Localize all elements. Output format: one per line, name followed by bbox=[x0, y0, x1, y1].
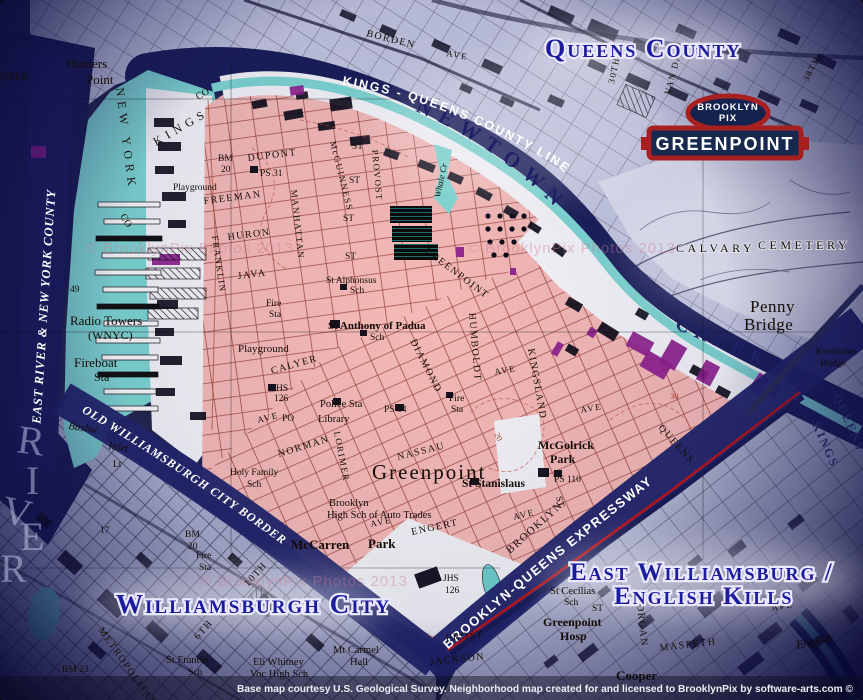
map-label-library-41: Library bbox=[318, 414, 350, 425]
map-label-hall-106: Hall bbox=[350, 657, 368, 668]
williamsburgh-city-title: Williamsburgh City bbox=[116, 589, 391, 619]
map-label-center-0: CENTER bbox=[0, 71, 29, 83]
map-label-sta-78: Sta bbox=[199, 563, 212, 573]
map-label-holy-family-54: Holy Family bbox=[230, 468, 279, 478]
map-label-st-29: ST bbox=[345, 252, 356, 262]
map-label-st-109: ST bbox=[592, 604, 603, 614]
map-label-bm-23-97: BM 23 bbox=[62, 665, 89, 675]
watermark: © BrooklynPix Photos 2013 bbox=[468, 240, 676, 257]
map-label-st-28: ST bbox=[343, 214, 354, 224]
map-label-mccarren-71: McCarren bbox=[291, 537, 350, 552]
map-label-mcgolrick-63: McGolrick bbox=[538, 438, 594, 452]
map-label-greenpoint-110: Greenpoint bbox=[543, 615, 601, 629]
map-label-ps-31-15: PS 31 bbox=[260, 169, 283, 179]
map-label-jhs-73: JHS bbox=[443, 574, 459, 584]
logo-brand-line2: PIX bbox=[719, 113, 737, 124]
map-label-mt-carmel-105: Mt Carmel bbox=[333, 645, 379, 656]
logo-brand-line1: BROOKLYN bbox=[697, 102, 759, 113]
map-label-sta-21: Sta bbox=[269, 310, 282, 320]
map-label-17-96: 17 bbox=[100, 526, 110, 536]
map-label-kosciusko-83: Kosciusko bbox=[816, 347, 856, 357]
map-label-126-74: 126 bbox=[445, 586, 460, 596]
map-label-wnyc-90: (WNYC) bbox=[88, 328, 133, 342]
map-label-st-27: ST bbox=[349, 176, 360, 186]
map-label-20-13: 20 bbox=[221, 165, 231, 175]
map-label-hosp-111: Hosp bbox=[560, 629, 587, 643]
map-label-st-alphonsus-31: St Alphonsus bbox=[326, 276, 377, 286]
map-canvas: NEWTOWN CREEK KINGS - QUEENS COUNTY LINE… bbox=[0, 0, 863, 700]
english-kills-title: English Kills bbox=[614, 583, 793, 610]
map-label-penny-79: Penny bbox=[750, 297, 795, 316]
map-label-playground-16: Playground bbox=[173, 183, 217, 193]
greenpoint-banner: GREENPOINT bbox=[641, 128, 809, 158]
map-label-hs-37: HS bbox=[276, 384, 288, 394]
queens-county-title: Queens County bbox=[545, 34, 742, 63]
map-label-calvary-81: CALVARY bbox=[676, 241, 755, 255]
map-label-park-72: Park bbox=[368, 536, 396, 551]
map-label-point-2: Point bbox=[86, 72, 114, 87]
map-label-po-39: PO bbox=[282, 414, 294, 424]
map-label-fire-77: Fire bbox=[196, 551, 211, 561]
map-label-49-88: 49 bbox=[70, 285, 80, 295]
map-label-st-stanislaus-66: St Stanislaus bbox=[462, 478, 525, 490]
credit-text: Base map courtesy U.S. Geological Survey… bbox=[237, 683, 853, 695]
map-label-sch-55: Sch bbox=[247, 480, 262, 490]
map-label-bm-12: BM bbox=[218, 154, 233, 164]
map-label-30-70: 30 bbox=[670, 391, 679, 401]
map-label-lt-93: Lt bbox=[113, 460, 122, 470]
map-label-fire-43: Fire bbox=[449, 394, 464, 404]
east-williamsburg-title: East Williamsburg / bbox=[570, 559, 834, 586]
map-label-st-anthony-of-padua-33: St Anthony of Padua bbox=[328, 320, 426, 332]
map-label-ps-110-65: PS 110 bbox=[554, 475, 581, 485]
map-label-playground-35: Playground bbox=[238, 343, 289, 355]
map-label-st-francis-101: St Francis bbox=[166, 655, 208, 666]
map-label-st-26: ST bbox=[352, 142, 363, 152]
map-label-police-sta-40: Police Sta bbox=[320, 399, 363, 410]
map-label-radio-towers-89: Radio Towers bbox=[70, 313, 142, 328]
map-label-bm-75: BM bbox=[185, 530, 200, 540]
map-label-r-123: R bbox=[0, 546, 27, 591]
map-label-park-64: Park bbox=[550, 452, 576, 466]
map-label-brooklyn-56: Brooklyn bbox=[329, 498, 369, 509]
greenpoint-neighborhood-map: NEWTOWN CREEK KINGS - QUEENS COUNTY LINE… bbox=[0, 0, 863, 700]
watermark: © BrooklynPix Photos 2013 bbox=[200, 573, 408, 590]
map-label-ps-34-42: PS 34 bbox=[384, 405, 407, 415]
map-label-fireboat-91: Fireboat bbox=[74, 355, 118, 370]
map-label-sta-44: Sta bbox=[451, 405, 464, 415]
map-label-hunters-1: Hunters bbox=[66, 56, 107, 71]
map-label-sch-34: Sch bbox=[370, 333, 385, 343]
brooklyn-pix-logo: BROOKLYN PIX bbox=[688, 96, 768, 130]
map-label-st-cecilias-112: St Cecilias bbox=[550, 586, 595, 597]
map-label-bridge-80: Bridge bbox=[744, 315, 793, 334]
map-label-fire-20: Fire bbox=[266, 299, 281, 309]
watermark: © BrooklynPix Photos 2013 bbox=[86, 240, 294, 257]
map-label-eli-whitney-103: Eli Whitney bbox=[253, 657, 305, 668]
map-label-sta-92: Sta bbox=[94, 370, 110, 384]
map-label-126-38: 126 bbox=[274, 394, 289, 404]
banner-neighborhood-title: GREENPOINT bbox=[655, 134, 794, 154]
map-label-sch-32: Sch bbox=[350, 286, 365, 296]
map-label-bridge-84: Bridge bbox=[820, 359, 846, 369]
map-label-sch-113: Sch bbox=[564, 598, 579, 608]
map-label-cemetery-82: CEMETERY bbox=[758, 238, 850, 252]
